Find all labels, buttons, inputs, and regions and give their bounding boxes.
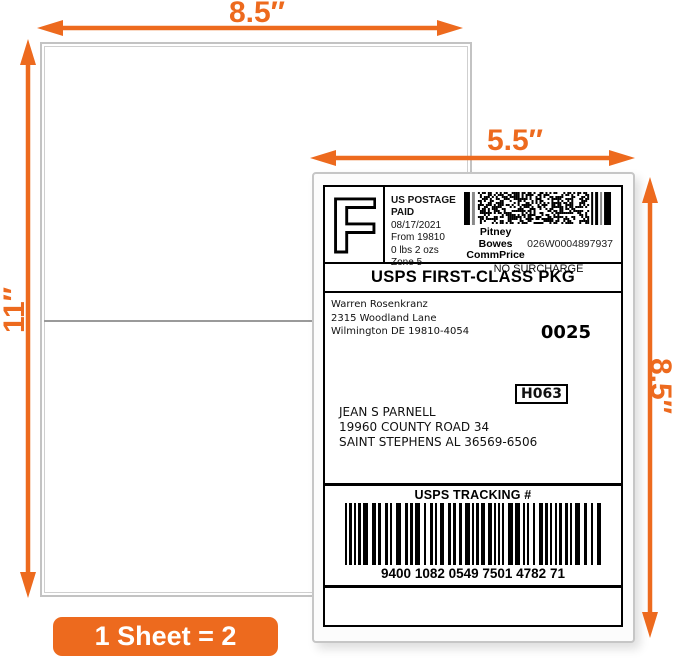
postage-date: 08/17/2021 (391, 220, 461, 232)
sheet-height-dimension: 11″ (0, 278, 30, 342)
svg-text:F: F (332, 195, 376, 255)
carrier-line: Pitney Bowes (464, 227, 527, 250)
carrier-line: CommPrice (464, 250, 527, 262)
postage-meter-area: Pitney Bowes CommPrice 026W0004897937 NO… (461, 187, 621, 262)
tracking-section: USPS TRACKING # 9400 1082 0549 7501 4782… (325, 483, 621, 588)
meter-number: 026W0004897937 (527, 238, 613, 250)
batch-number: 0025 (541, 322, 591, 343)
tracking-number: 9400 1082 0549 7501 4782 71 (325, 566, 621, 581)
postage-logo-cell: F (325, 187, 385, 262)
postage-info: US POSTAGE PAID 08/17/2021 From 19810 0 … (385, 187, 461, 262)
carrier-name: Pitney Bowes CommPrice (464, 227, 527, 262)
postage-paid-line: US POSTAGE (391, 195, 461, 207)
tracking-barcode (345, 503, 601, 565)
postage-weight: 0 lbs 2 ozs (391, 245, 461, 257)
label-footer-blank (325, 588, 621, 625)
recipient-line: SAINT STEPHENS AL 36569-6506 (339, 435, 537, 450)
postage-2d-barcode (464, 192, 613, 225)
postage-paid-line: PAID (391, 207, 461, 219)
sender-line: Warren Rosenkranz (331, 298, 469, 312)
postage-origin-zip: From 19810 (391, 232, 461, 244)
carrier-row: Pitney Bowes CommPrice 026W0004897937 (464, 227, 613, 262)
recipient-line: JEAN S PARNELL (339, 405, 537, 420)
shipping-label: F US POSTAGE PAID 08/17/2021 From 19810 … (312, 172, 635, 643)
sheet-count-badge: 1 Sheet = 2 Labels (53, 617, 278, 656)
recipient-line: 19960 COUNTY ROAD 34 (339, 420, 537, 435)
usps-f-logo-icon: F (332, 195, 376, 255)
recipient-address: JEAN S PARNELL 19960 COUNTY ROAD 34 SAIN… (339, 405, 537, 450)
tracking-title: USPS TRACKING # (325, 486, 621, 502)
postage-block: F US POSTAGE PAID 08/17/2021 From 19810 … (325, 187, 621, 264)
service-class-banner: USPS FIRST-CLASS PKG (325, 264, 621, 293)
address-section: Warren Rosenkranz 2315 Woodland Lane Wil… (325, 293, 621, 483)
sheet-width-dimension: 8.5″ (225, 0, 289, 30)
sender-line: 2315 Woodland Lane (331, 312, 469, 326)
label-width-arrow-icon (310, 147, 635, 169)
label-product-infographic: 8.5″ 11″ F US POSTAGE PAID 08/17/2021 Fr… (0, 0, 679, 659)
label-width-dimension: 5.5″ (483, 124, 547, 158)
sort-code-box: H063 (515, 384, 568, 404)
sender-line: Wilmington DE 19810-4054 (331, 325, 469, 339)
shipping-label-content: F US POSTAGE PAID 08/17/2021 From 19810 … (323, 185, 623, 627)
label-height-dimension: 8.5″ (645, 351, 677, 421)
sender-address: Warren Rosenkranz 2315 Woodland Lane Wil… (331, 298, 469, 339)
